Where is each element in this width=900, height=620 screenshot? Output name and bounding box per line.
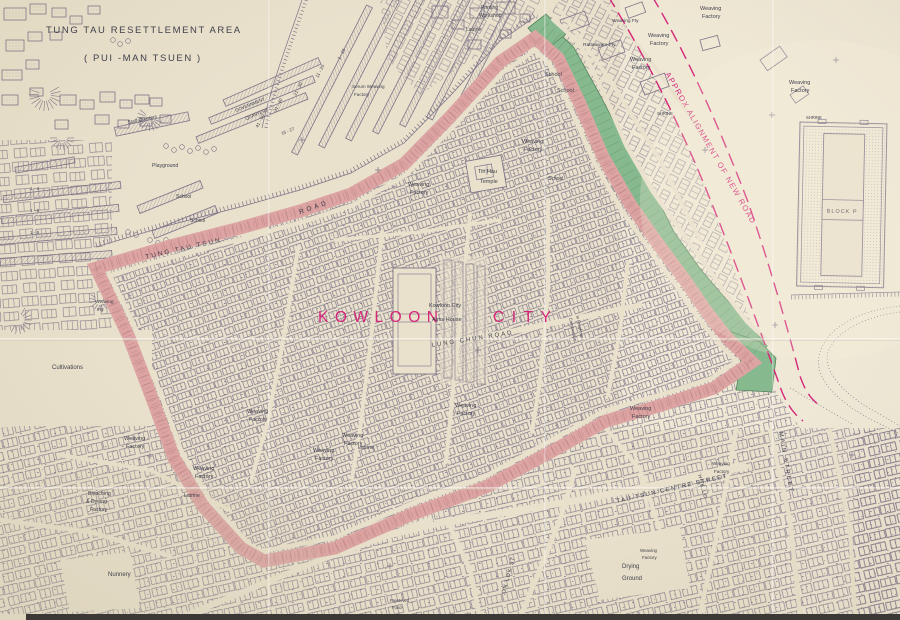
svg-text:School: School — [548, 176, 563, 182]
svg-text:Temple: Temple — [480, 179, 498, 185]
svg-text:Serum Weaving: Serum Weaving — [352, 84, 385, 89]
svg-text:Preserved: Preserved — [390, 598, 410, 603]
svg-text:Weaving: Weaving — [700, 6, 721, 12]
svg-text:Weaving: Weaving — [522, 139, 543, 145]
svg-text:Weaving Fty: Weaving Fty — [612, 18, 639, 24]
svg-text:Bleaching: Bleaching — [88, 491, 111, 497]
svg-text:Factory: Factory — [632, 414, 651, 420]
svg-text:Workshop: Workshop — [479, 13, 502, 19]
svg-text:Factory: Factory — [632, 65, 651, 71]
svg-text:KOWLOON: KOWLOON — [318, 309, 444, 326]
svg-text:1 - 4: 1 - 4 — [30, 186, 40, 191]
svg-text:Factory: Factory — [791, 88, 810, 94]
svg-text:Factory: Factory — [650, 41, 669, 47]
svg-text:Latrine: Latrine — [184, 493, 200, 499]
svg-text:Weaving: Weaving — [630, 406, 651, 412]
svg-text:Food: Food — [392, 605, 402, 610]
svg-text:Factory: Factory — [126, 444, 145, 450]
svg-text:Weaving: Weaving — [247, 409, 268, 415]
svg-text:Factory: Factory — [524, 147, 543, 153]
svg-text:School: School — [557, 88, 574, 94]
svg-text:Factory: Factory — [195, 474, 214, 480]
svg-text:Weaving: Weaving — [630, 57, 651, 63]
svg-text:Weaving: Weaving — [95, 299, 114, 305]
svg-text:Weaving: Weaving — [789, 80, 810, 86]
svg-text:Factory: Factory — [702, 14, 721, 20]
svg-text:Factory: Factory — [354, 92, 370, 97]
svg-text:Weaving: Weaving — [342, 433, 363, 439]
svg-text:Playground: Playground — [152, 163, 178, 169]
svg-text:Factory: Factory — [714, 469, 730, 474]
svg-text:School: School — [190, 218, 205, 224]
svg-text:Factory: Factory — [410, 190, 429, 196]
svg-text:SHRINE: SHRINE — [657, 111, 673, 116]
svg-text:Fty: Fty — [97, 307, 104, 313]
svg-text:CITY: CITY — [493, 309, 558, 326]
svg-text:Weaving: Weaving — [313, 448, 334, 454]
svg-text:Nunnery: Nunnery — [108, 572, 131, 578]
svg-text:Latrine: Latrine — [358, 445, 374, 451]
svg-text:1 - 6: 1 - 6 — [30, 208, 40, 213]
svg-text:1 - 5: 1 - 5 — [30, 230, 40, 235]
svg-text:Factory: Factory — [457, 411, 476, 417]
svg-text:Weaving: Weaving — [124, 436, 145, 442]
svg-text:& Dyeing: & Dyeing — [86, 499, 107, 505]
svg-text:Printing: Printing — [481, 5, 498, 11]
svg-text:School: School — [545, 72, 562, 78]
svg-text:Weaving: Weaving — [640, 548, 658, 553]
svg-text:Weaving: Weaving — [193, 466, 214, 472]
svg-text:Rattanware Fty: Rattanware Fty — [583, 42, 616, 48]
svg-text:Drying: Drying — [622, 564, 639, 570]
svg-text:Factory: Factory — [249, 417, 268, 423]
svg-text:Ground: Ground — [622, 576, 642, 582]
svg-text:Weaving: Weaving — [455, 403, 476, 409]
svg-text:Weaving: Weaving — [712, 461, 730, 466]
svg-text:( PUI -MAN TSUEN ): ( PUI -MAN TSUEN ) — [84, 53, 202, 64]
svg-text:Weaving: Weaving — [408, 182, 429, 188]
svg-text:Tin Hau: Tin Hau — [478, 169, 497, 175]
svg-text:Factory: Factory — [642, 555, 657, 560]
svg-text:Alms House: Alms House — [432, 317, 462, 323]
svg-text:Weaving: Weaving — [648, 33, 669, 39]
svg-text:Cultivations: Cultivations — [52, 365, 83, 371]
svg-text:Factory: Factory — [315, 456, 334, 462]
svg-text:Kowloon City: Kowloon City — [429, 303, 461, 309]
svg-text:Latrine: Latrine — [466, 27, 482, 33]
svg-text:Factory: Factory — [90, 507, 108, 513]
svg-text:SHRINE: SHRINE — [806, 115, 822, 120]
svg-text:TUNG TAU RESETTLEMENT AREA: TUNG TAU RESETTLEMENT AREA — [46, 25, 242, 36]
svg-text:School: School — [176, 194, 191, 200]
